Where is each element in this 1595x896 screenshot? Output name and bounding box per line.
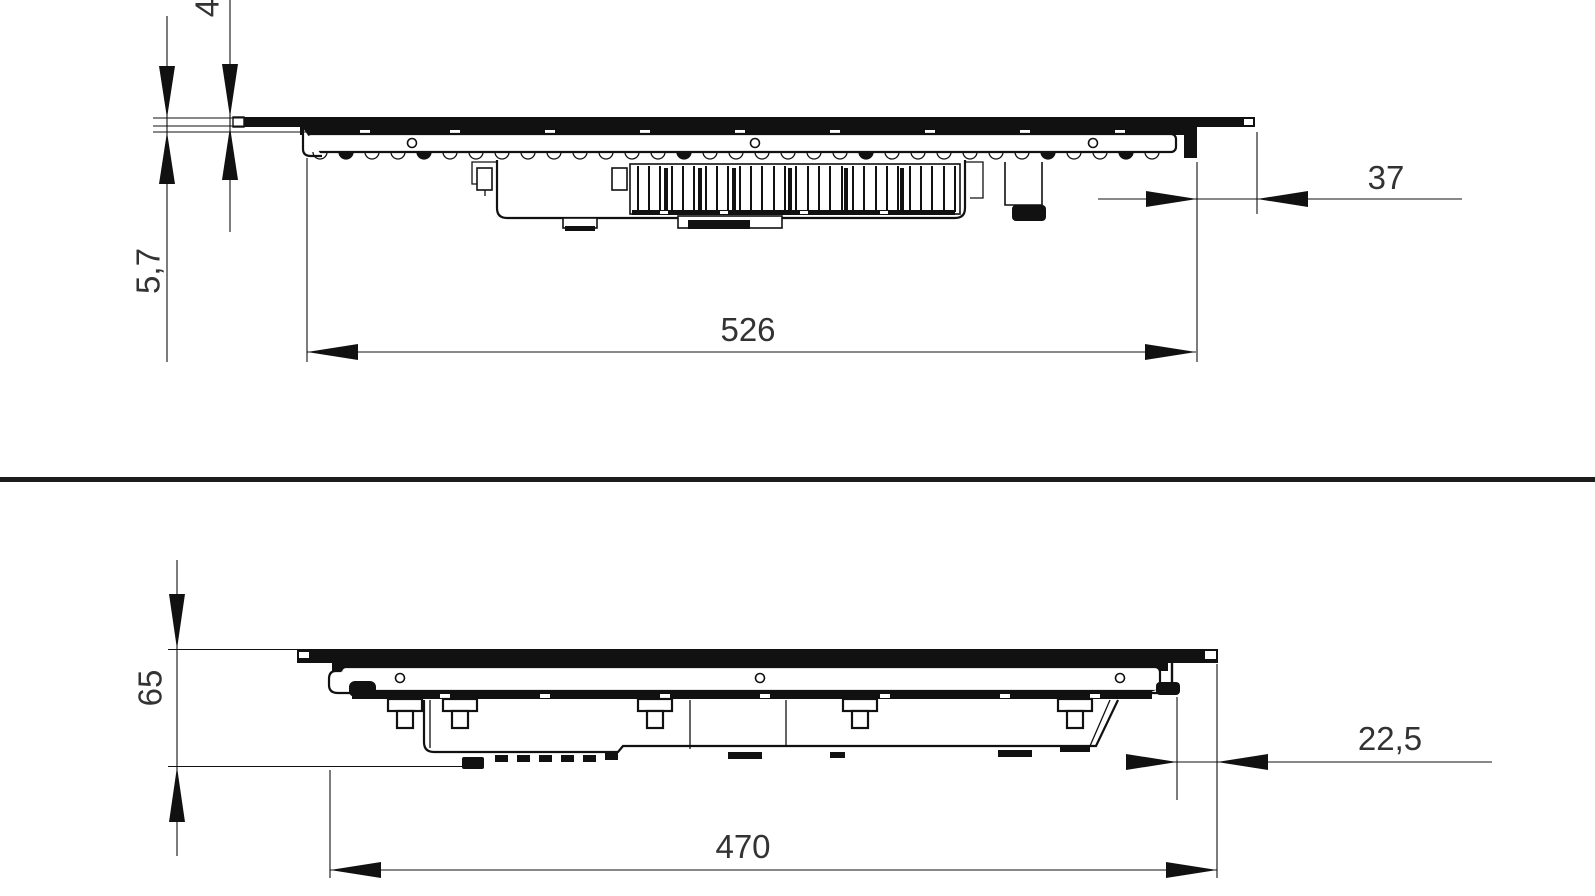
hanging-tab <box>477 168 492 190</box>
hanging-tab <box>612 168 627 190</box>
glass-right-notch <box>1244 119 1253 125</box>
glass-body <box>297 649 1218 663</box>
arrowhead-right <box>1146 191 1197 207</box>
standoff-shank <box>452 711 468 728</box>
screw-hole <box>751 139 760 148</box>
dim-body-depth-label: 470 <box>715 828 770 865</box>
right-bracket <box>1005 162 1042 205</box>
dim-body-width-label: 526 <box>720 311 775 348</box>
standoff-flange <box>388 699 422 711</box>
arrowhead-right <box>1166 862 1217 878</box>
standoff-shank <box>647 711 663 728</box>
arrowhead-up <box>222 127 238 180</box>
glass-panel <box>233 117 1255 127</box>
under-bracket-foot <box>688 220 750 229</box>
dim-total-height-label: 65 <box>132 670 169 707</box>
arrowhead-up <box>169 767 185 822</box>
right-bracket-foot <box>1012 205 1046 221</box>
chassis-tray <box>306 134 1176 152</box>
arrowhead-left <box>330 862 381 878</box>
standoff-flange <box>638 699 672 711</box>
dim-profile-height: 5,7 <box>130 16 313 362</box>
right-trim <box>1184 127 1197 158</box>
chassis <box>329 663 1180 699</box>
drawing-page: 4 5,7 37 526 <box>0 0 1595 896</box>
dim-right-offset-bottom-label: 22,5 <box>1358 720 1422 757</box>
screw-hole <box>408 139 417 148</box>
standoff-shank <box>1067 711 1083 728</box>
dim-glass-thickness-label: 4 <box>189 0 226 17</box>
technical-drawing: 4 5,7 37 526 <box>0 0 1595 896</box>
chassis-tray <box>341 667 1160 691</box>
arrowhead-right <box>1145 344 1196 360</box>
housing-tab-foot <box>565 226 595 231</box>
glass-left-notch <box>299 652 309 658</box>
standoff-shank <box>397 711 413 728</box>
dim-right-offset-top-label: 37 <box>1368 159 1405 196</box>
arrowhead-down <box>222 64 238 117</box>
standoff-flange <box>443 699 477 711</box>
standoff-flange <box>843 699 877 711</box>
screw-hole <box>1116 674 1125 683</box>
housing-box <box>424 700 1118 752</box>
connector-foot <box>462 757 484 769</box>
glass-panel <box>297 649 1218 663</box>
arrowhead-left <box>1217 754 1268 770</box>
section-divider <box>0 477 1595 482</box>
arrowhead-down <box>169 594 185 649</box>
arrowhead-down <box>159 66 175 118</box>
dim-profile-height-label: 5,7 <box>130 248 167 294</box>
arrowhead-left <box>307 344 358 360</box>
bottom-view: 65 22,5 470 <box>132 560 1493 878</box>
top-view: 4 5,7 37 526 <box>130 0 1463 362</box>
glass-right-notch <box>1205 651 1216 659</box>
housing <box>472 160 1046 231</box>
right-trim-foot <box>1156 682 1180 695</box>
housing <box>424 700 1118 769</box>
standoff-flange <box>1058 699 1092 711</box>
glass-body <box>243 117 1255 127</box>
heatsink-rail <box>632 210 955 215</box>
screw-hole <box>396 674 405 683</box>
screw-hole <box>1089 139 1098 148</box>
mount-band <box>352 691 1152 699</box>
standoff-shank <box>852 711 868 728</box>
right-mount-tab <box>965 162 983 198</box>
arrowhead-up <box>159 132 175 184</box>
dim-glass-thickness: 4 <box>189 0 239 232</box>
screw-hole <box>756 674 765 683</box>
arrowhead-left <box>1257 191 1308 207</box>
dim-right-offset-bottom: 22,5 <box>1126 697 1492 800</box>
arrowhead-right <box>1126 754 1177 770</box>
chassis <box>300 127 1197 159</box>
